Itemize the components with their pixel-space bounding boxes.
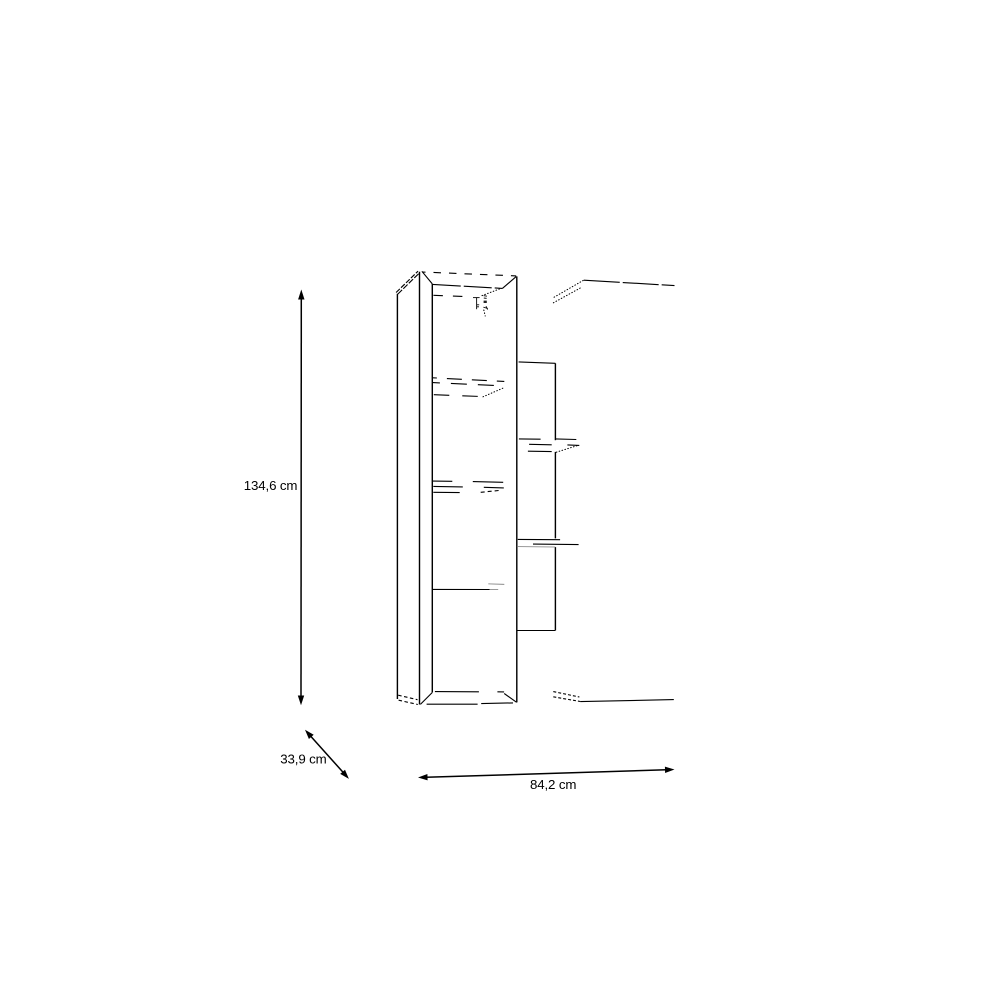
- svg-text:33,9 cm: 33,9 cm: [280, 751, 326, 766]
- svg-text:134,6 cm: 134,6 cm: [244, 478, 298, 493]
- svg-text:84,2 cm: 84,2 cm: [530, 777, 576, 792]
